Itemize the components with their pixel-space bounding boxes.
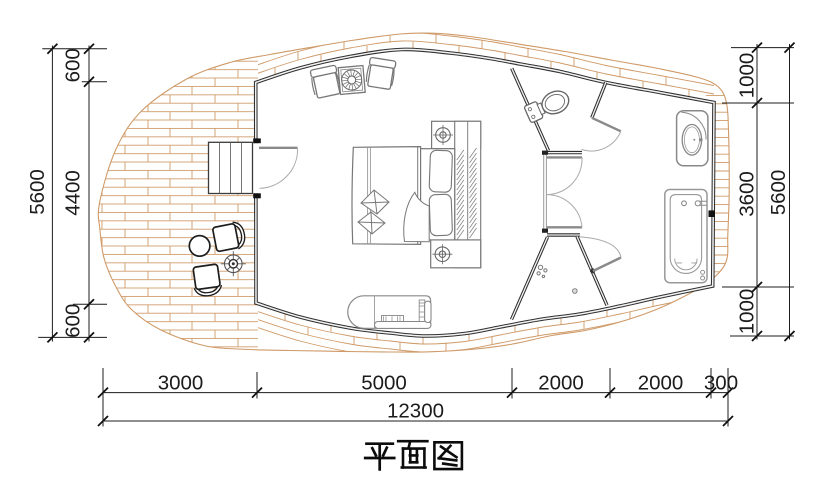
svg-text:300: 300 <box>704 371 738 394</box>
svg-text:2000: 2000 <box>538 371 584 394</box>
svg-text:3600: 3600 <box>736 171 759 217</box>
svg-text:5600: 5600 <box>767 170 790 216</box>
svg-text:1000: 1000 <box>736 53 759 99</box>
svg-text:1000: 1000 <box>736 289 759 335</box>
svg-text:3000: 3000 <box>158 371 204 394</box>
svg-text:600: 600 <box>61 48 84 82</box>
svg-text:12300: 12300 <box>387 400 444 423</box>
svg-text:2000: 2000 <box>638 371 684 394</box>
svg-text:5600: 5600 <box>26 169 49 215</box>
svg-text:5000: 5000 <box>361 371 407 394</box>
svg-text:4400: 4400 <box>61 170 84 216</box>
svg-text:600: 600 <box>61 304 84 338</box>
